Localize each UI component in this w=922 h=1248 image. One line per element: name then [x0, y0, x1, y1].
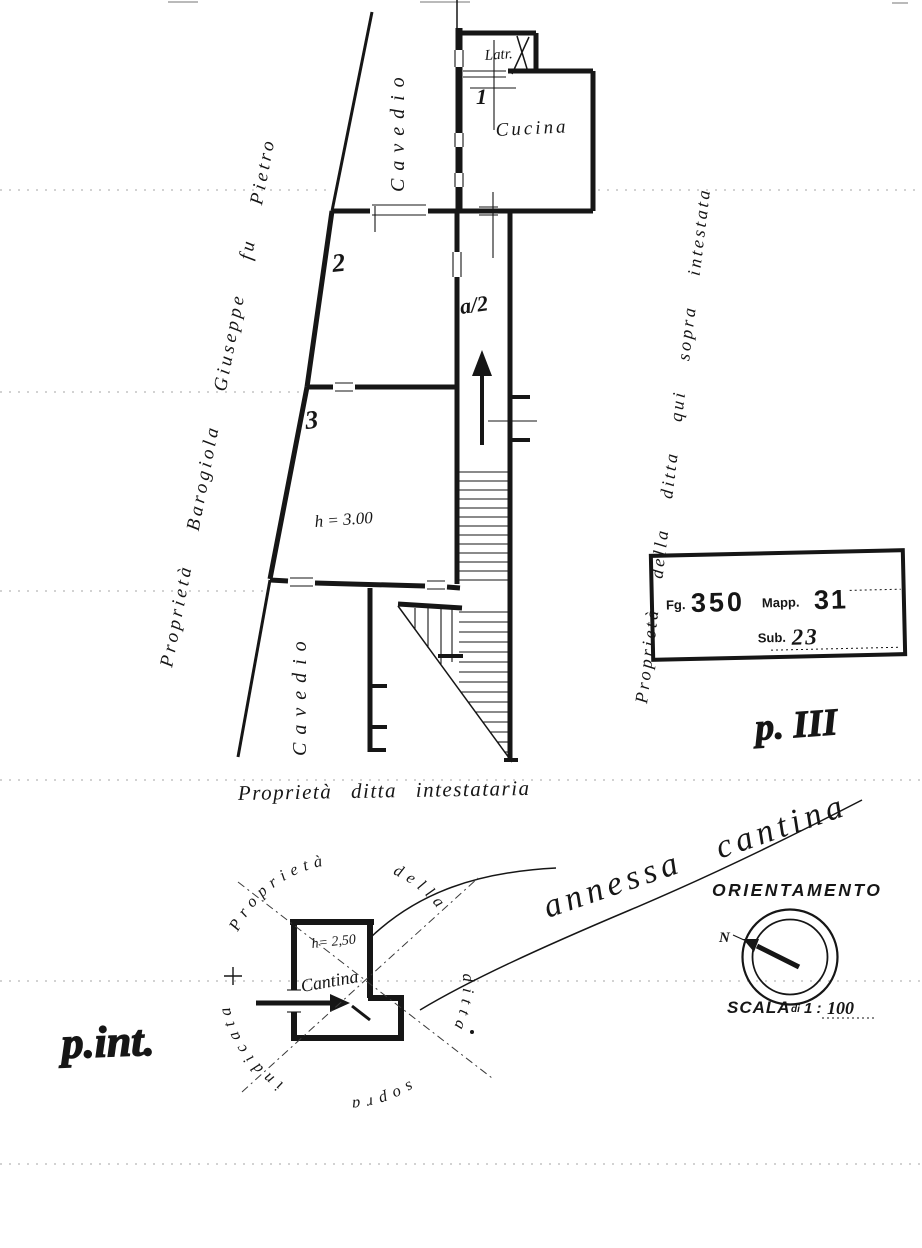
stair-direction-arrow [472, 350, 492, 445]
floor-note: p. III [751, 701, 840, 749]
room2-number: 2 [330, 248, 347, 278]
stamp-mapp-label: Mapp. [762, 595, 800, 611]
basement-room-label: Cantina [299, 966, 360, 996]
owner-left-annotation: Proprietà Barogiola Giuseppe fu Pietro [156, 136, 280, 670]
compass-north-label: N [718, 930, 731, 946]
stamp-sub-label: Sub. [758, 630, 787, 646]
stamp-sub-value: 23 [790, 624, 819, 650]
basement-height-note: h= 2,50 [311, 932, 357, 952]
cadastral-plan-page: Latr. 1 Cucina 2 3 a/2 h = 3.00 Cavedio … [0, 0, 922, 1248]
scale-ratio: 1 : [804, 1000, 822, 1017]
compass-icon: N [718, 910, 838, 1005]
cursive-note: annessa cantina [539, 787, 853, 926]
cadastral-plan-svg: Latr. 1 Cucina 2 3 a/2 h = 3.00 Cavedio … [0, 0, 922, 1248]
stamp-mapp-value: 31 [814, 584, 849, 615]
basement-plan: Proprietà della ditta sopra indicata h= … [214, 846, 492, 1119]
scale-label: SCALA [727, 998, 791, 1017]
stamp-fg-label: Fg. [666, 597, 686, 612]
stamp-fg-value: 350 [691, 587, 746, 618]
latrina-label: Latr. [483, 46, 513, 64]
room1-number: 1 [476, 84, 487, 109]
cavedio-bottom-label: Cavedio [289, 633, 311, 756]
stair-flight-label: a/2 [458, 290, 489, 319]
orientation-block: ORIENTAMENTO N SCALA di 1 : 100 [712, 880, 882, 1018]
stamp-box: Fg. 350 Mapp. 31 Sub. 23 [651, 550, 905, 660]
orientation-title: ORIENTAMENTO [712, 880, 882, 900]
walls [270, 0, 593, 760]
basement-entry-arrow [256, 994, 350, 1012]
room3-number: 3 [303, 405, 320, 435]
owner-bottom-annotation: Proprietà ditta intestataria [237, 776, 531, 805]
scale-note: SCALA di 1 : 100 [727, 998, 874, 1018]
cavedio-top-label: Cavedio [387, 69, 409, 192]
kitchen-label: Cucina [495, 116, 569, 141]
scale-value: 100 [827, 998, 854, 1018]
height-note: h = 3.00 [314, 508, 374, 531]
owner-right-annotation: Proprietà della ditta qui sopra intestat… [631, 186, 714, 705]
basement-floor-note: p.int. [57, 1016, 156, 1068]
upper-floor-plan: Latr. 1 Cucina 2 3 a/2 h = 3.00 Cavedio … [156, 0, 714, 805]
scale-di: di [791, 1004, 800, 1015]
